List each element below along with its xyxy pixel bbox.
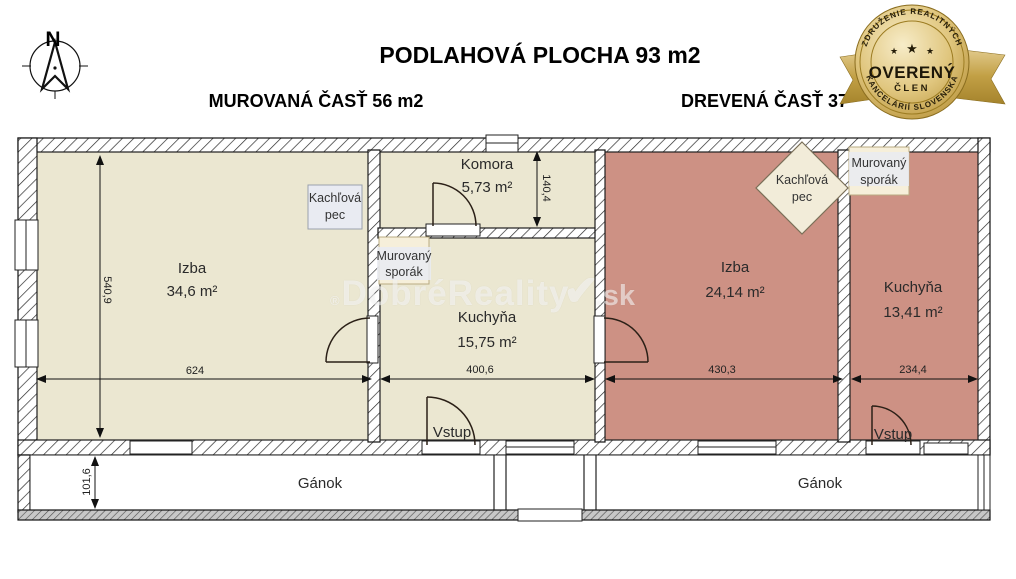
compass-icon: N xyxy=(22,28,88,99)
room-ganok-right-label: Gánok xyxy=(798,475,843,492)
svg-text:★: ★ xyxy=(890,46,898,56)
dim-kuchyna-left-width: 400,6 xyxy=(466,364,494,376)
fixture-murovany-sporak-right: Murovaný sporák xyxy=(849,147,909,195)
room-izba-left-name: Izba xyxy=(178,260,207,277)
svg-text:Murovaný: Murovaný xyxy=(377,249,433,263)
room-vstup-right-label: Vstup xyxy=(874,426,912,443)
svg-text:pec: pec xyxy=(792,190,812,204)
room-kuchyna-right-area: 13,41 m² xyxy=(883,304,942,321)
svg-text:★: ★ xyxy=(926,46,934,56)
badge-medal: ZDRUŽENIE REALITNÝCH KANCELÁRIÍ SLOVENSK… xyxy=(855,5,969,119)
room-komora-name: Komora xyxy=(461,156,514,173)
dim-ganok-height: 101,6 xyxy=(81,468,93,496)
dim-izba-left-width: 624 xyxy=(186,365,204,377)
room-izba-right-name: Izba xyxy=(721,259,750,276)
page-title: PODLAHOVÁ PLOCHA 93 m2 xyxy=(379,42,700,69)
svg-text:sporák: sporák xyxy=(860,173,898,187)
subtitle-wooden-part: DREVENÁ ČASŤ 37 xyxy=(681,91,848,112)
room-ganok-left-label: Gánok xyxy=(298,475,343,492)
badge-subtitle: ČLEN xyxy=(894,82,930,94)
porch-area xyxy=(18,455,990,521)
room-izba-right-area: 24,14 m² xyxy=(705,284,764,301)
floorplan-page: PODLAHOVÁ PLOCHA 93 m2 MUROVANÁ ČASŤ 56 … xyxy=(0,0,1016,579)
fixture-kachlova-pec-left: Kachľová pec xyxy=(308,185,362,229)
room-vstup-left-label: Vstup xyxy=(433,424,471,441)
room-kuchyna-left-name: Kuchyňa xyxy=(458,309,517,326)
svg-text:Kachľová: Kachľová xyxy=(776,173,828,187)
room-kuchyna-left-area: 15,75 m² xyxy=(457,334,516,351)
badge-title: OVERENÝ xyxy=(869,63,956,82)
dim-komora-height: 140,4 xyxy=(540,174,552,202)
subtitle-masonry-part: MUROVANÁ ČASŤ 56 m2 xyxy=(209,91,424,112)
room-kuchyna-right-name: Kuchyňa xyxy=(884,279,943,296)
svg-text:★: ★ xyxy=(906,41,918,56)
dim-left-height: 540,9 xyxy=(101,276,113,304)
room-komora-area: 5,73 m² xyxy=(462,179,513,196)
dim-kuchyna-right-width: 234,4 xyxy=(899,364,927,376)
svg-text:pec: pec xyxy=(325,208,345,222)
svg-text:Kachľová: Kachľová xyxy=(309,191,361,205)
svg-text:Murovaný: Murovaný xyxy=(852,156,908,170)
verified-badge: ZDRUŽENIE REALITNÝCH KANCELÁRIÍ SLOVENSK… xyxy=(838,0,1016,140)
compass-north-label: N xyxy=(45,28,60,51)
dim-izba-right-width: 430,3 xyxy=(708,364,736,376)
porch-entrance-opening xyxy=(518,509,582,521)
room-izba-left-area: 34,6 m² xyxy=(167,283,218,300)
svg-text:sporák: sporák xyxy=(385,265,423,279)
fixture-murovany-sporak-left: Murovaný sporák xyxy=(377,237,433,284)
